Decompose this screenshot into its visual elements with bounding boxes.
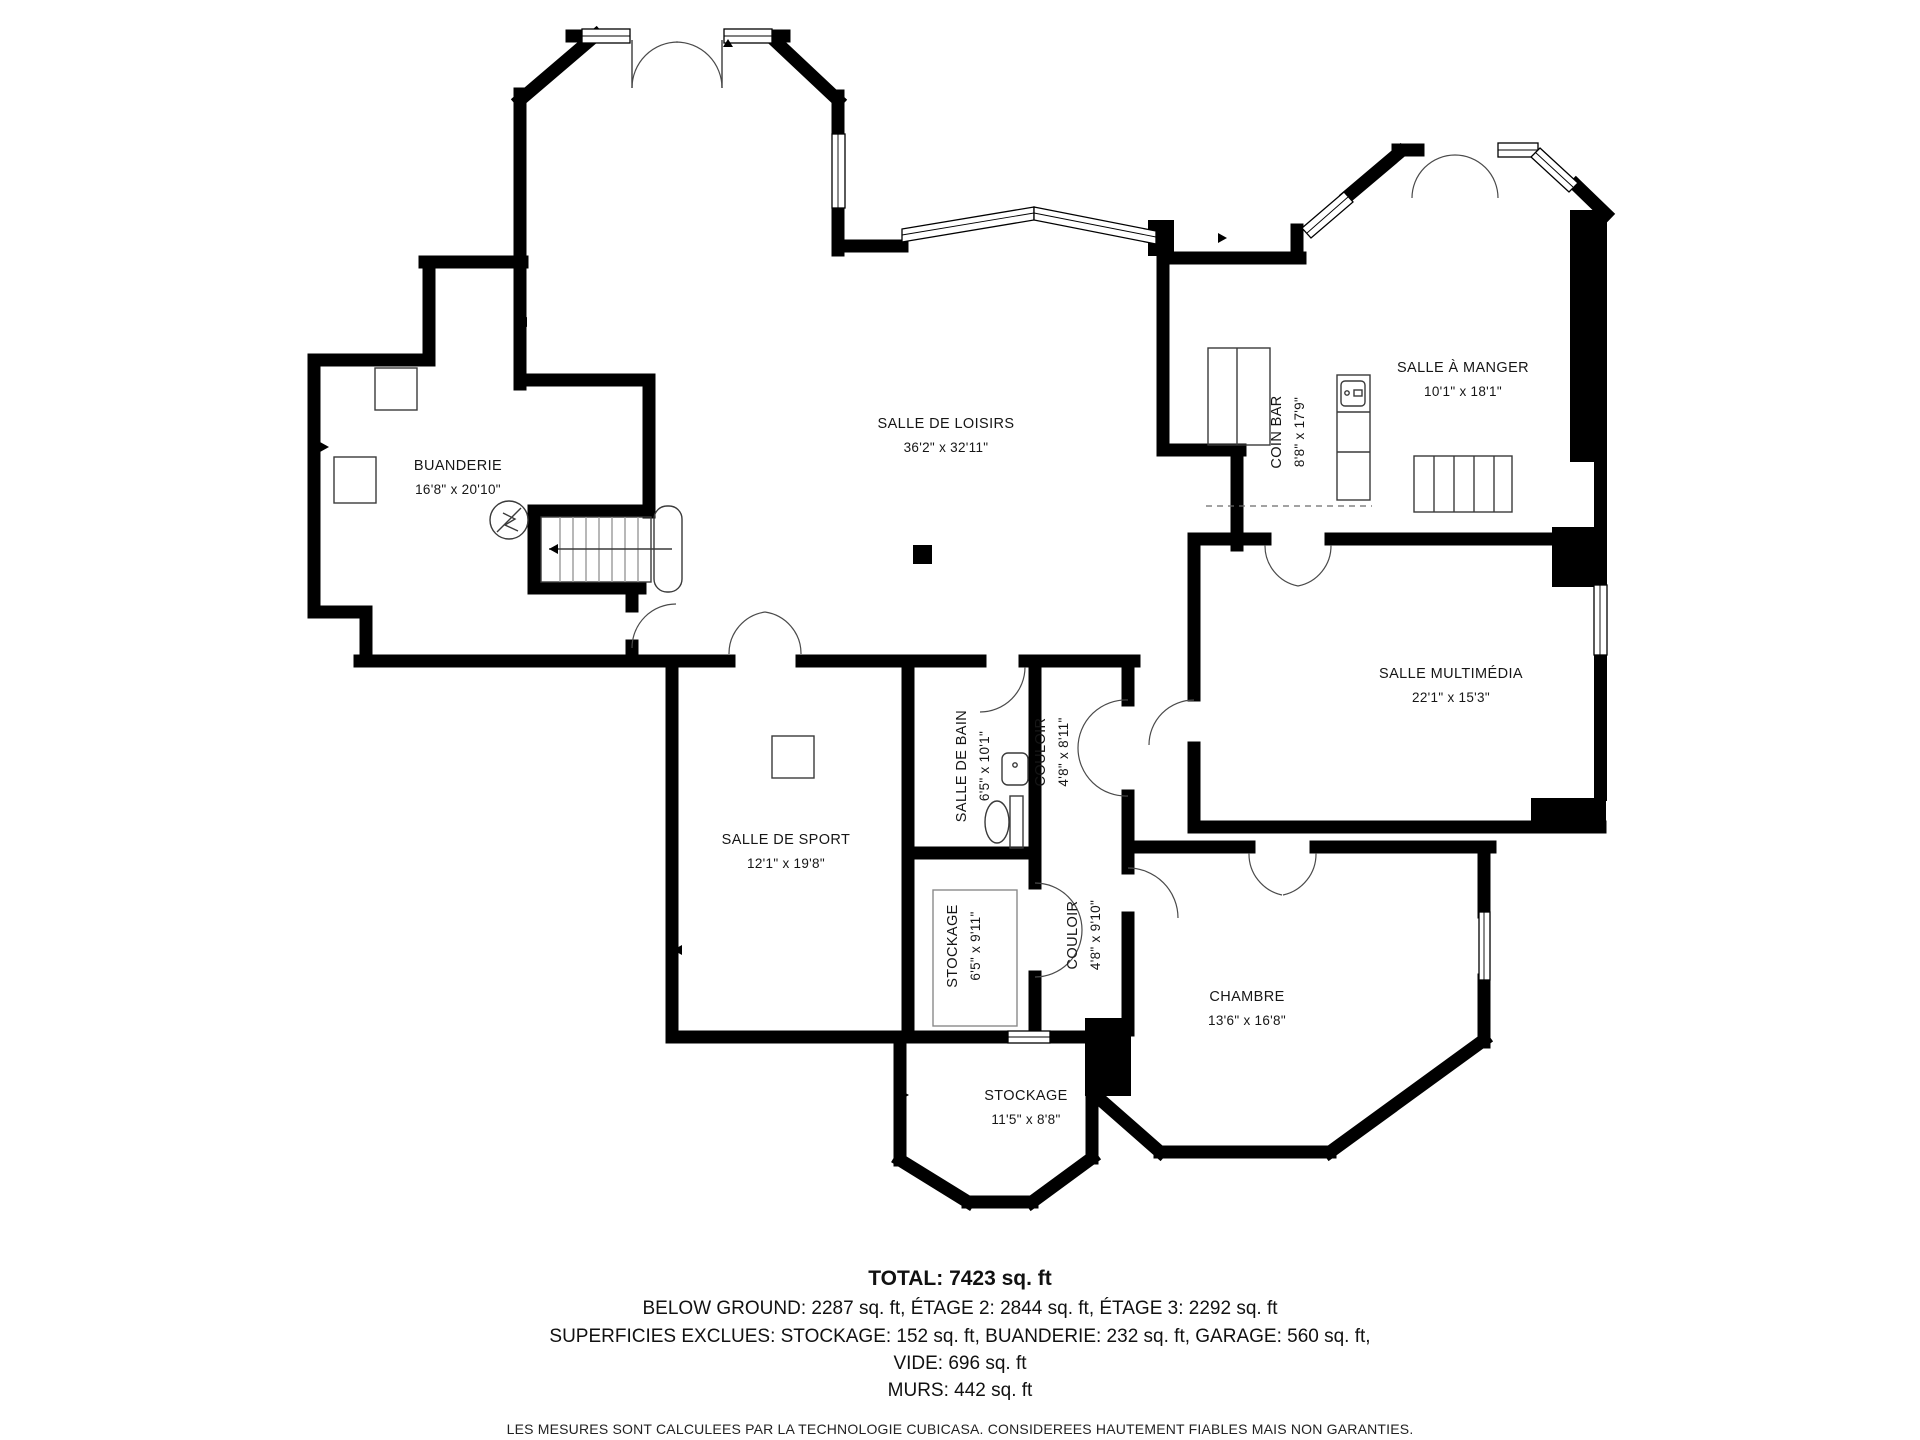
- room-dims-salle-a-manger: 10'1" x 18'1": [1424, 384, 1502, 399]
- room-dims-stockage-milieu: 6'5" x 9'11": [968, 911, 983, 980]
- room-dims-salle-multimedia: 22'1" x 15'3": [1412, 690, 1490, 705]
- room-labels: SALLE DE LOISIRS 36'2" x 32'11" BUANDERI…: [414, 359, 1529, 1127]
- bar-cabinet: [1208, 348, 1270, 445]
- door-arc: [1128, 868, 1178, 918]
- room-label-salle-de-bain: SALLE DE BAIN: [954, 710, 970, 822]
- double-door-arc: [1412, 155, 1498, 198]
- window: [832, 134, 845, 208]
- room-label-coin-bar: COIN BAR: [1269, 395, 1285, 468]
- room-dims-coin-bar: 8'8" x 17'9": [1292, 397, 1307, 467]
- window: [1479, 912, 1490, 980]
- window: [1302, 192, 1353, 238]
- room-label-couloir-haut: COULOIR: [1033, 718, 1049, 787]
- room-dims-salle-de-bain: 6'5" x 10'1": [977, 731, 992, 801]
- laundry-appliance: [334, 457, 376, 503]
- double-door-arc: [1265, 545, 1331, 586]
- door-arc: [980, 667, 1025, 712]
- summary-murs: MURS: 442 sq. ft: [888, 1380, 1033, 1401]
- bathroom-sink-icon: [1002, 753, 1028, 785]
- room-dims-couloir-haut: 4'8" x 8'11": [1056, 717, 1071, 786]
- room-dims-stockage-bas: 11'5" x 8'8": [991, 1112, 1060, 1127]
- room-label-salle-de-sport: SALLE DE SPORT: [722, 832, 851, 848]
- summary: TOTAL: 7423 sq. ft BELOW GROUND: 2287 sq…: [507, 1267, 1414, 1437]
- window: [1008, 1031, 1050, 1043]
- exterior-walls: [314, 35, 1607, 1202]
- window: [1498, 143, 1538, 157]
- electrical-panel-icon: [490, 501, 528, 539]
- door-arc: [1149, 700, 1194, 745]
- summary-floors: BELOW GROUND: 2287 sq. ft, ÉTAGE 2: 2844…: [643, 1298, 1279, 1319]
- room-dims-buanderie: 16'8" x 20'10": [415, 482, 501, 497]
- bar-counter: [1337, 375, 1370, 500]
- room-label-stockage-bas: STOCKAGE: [984, 1088, 1068, 1104]
- window: [1531, 148, 1578, 192]
- support-column: [913, 545, 932, 564]
- double-door-arc: [729, 612, 801, 654]
- room-dims-couloir-bas: 4'8" x 9'10": [1088, 900, 1103, 970]
- disclaimer-text: LES MESURES SONT CALCULEES PAR LA TECHNO…: [507, 1421, 1414, 1437]
- gym-equipment: [772, 736, 814, 778]
- room-dims-salle-de-sport: 12'1" x 19'8": [747, 856, 825, 871]
- room-label-stockage-milieu: STOCKAGE: [945, 904, 961, 988]
- window: [1594, 585, 1607, 655]
- window: [582, 29, 630, 43]
- toilet-icon: [985, 796, 1023, 848]
- laundry-appliance: [375, 368, 417, 410]
- room-label-salle-multimedia: SALLE MULTIMÉDIA: [1379, 665, 1523, 682]
- double-door-arc: [632, 40, 722, 88]
- window: [724, 29, 772, 43]
- room-label-salle-a-manger: SALLE À MANGER: [1397, 359, 1529, 376]
- door-arc: [632, 604, 676, 648]
- room-dims-chambre: 13'6" x 16'8": [1208, 1013, 1286, 1028]
- room-dims-salle-de-loisirs: 36'2" x 32'11": [904, 440, 989, 455]
- summary-excluded: SUPERFICIES EXCLUES: STOCKAGE: 152 sq. f…: [549, 1326, 1370, 1347]
- summary-vide: VIDE: 696 sq. ft: [893, 1353, 1027, 1374]
- floor-plan-page: SALLE DE LOISIRS 36'2" x 32'11" BUANDERI…: [0, 0, 1920, 1440]
- room-label-couloir-bas: COULOIR: [1065, 901, 1081, 970]
- summary-total: TOTAL: 7423 sq. ft: [868, 1267, 1052, 1290]
- room-label-buanderie: BUANDERIE: [414, 458, 502, 474]
- double-door-arc: [1249, 853, 1316, 895]
- window-arc-band: [902, 207, 1156, 244]
- dining-steps: [1414, 456, 1512, 512]
- double-swing-door-arc: [1078, 700, 1128, 796]
- room-label-chambre: CHAMBRE: [1209, 989, 1284, 1005]
- floor-plan-svg: SALLE DE LOISIRS 36'2" x 32'11" BUANDERI…: [0, 0, 1920, 1440]
- room-label-salle-de-loisirs: SALLE DE LOISIRS: [878, 416, 1015, 432]
- bar-sink-icon: [1341, 381, 1365, 406]
